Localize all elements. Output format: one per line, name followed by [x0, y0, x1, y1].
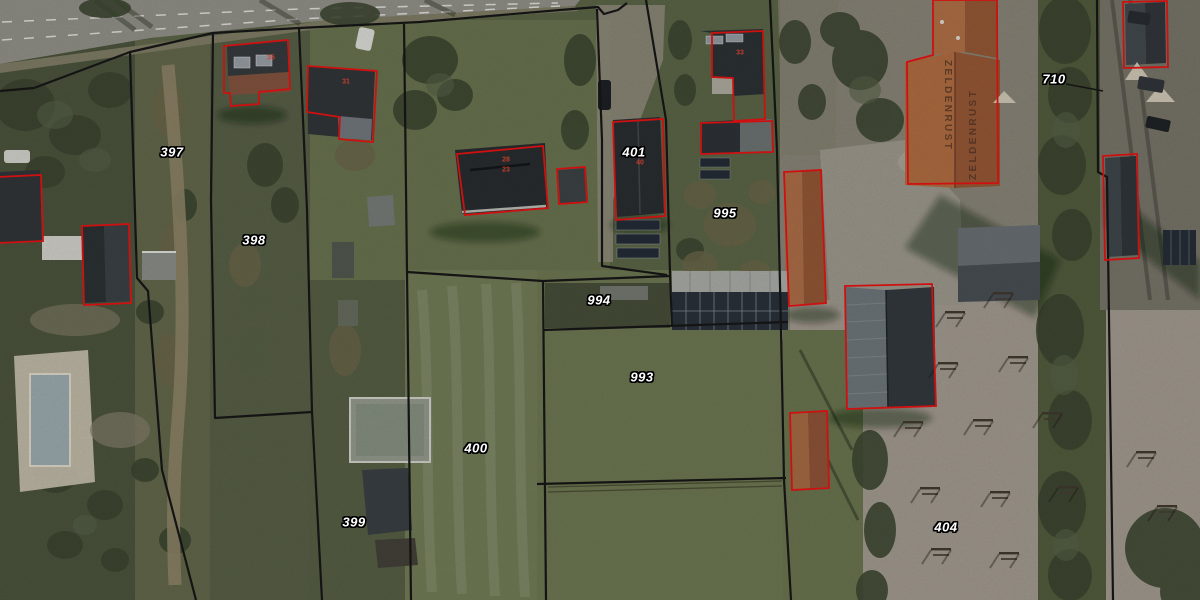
aerial-basemap	[0, 0, 1200, 600]
map-viewport[interactable]: 397 398 399 400 401 404 710 993 994 995 …	[0, 0, 1200, 600]
